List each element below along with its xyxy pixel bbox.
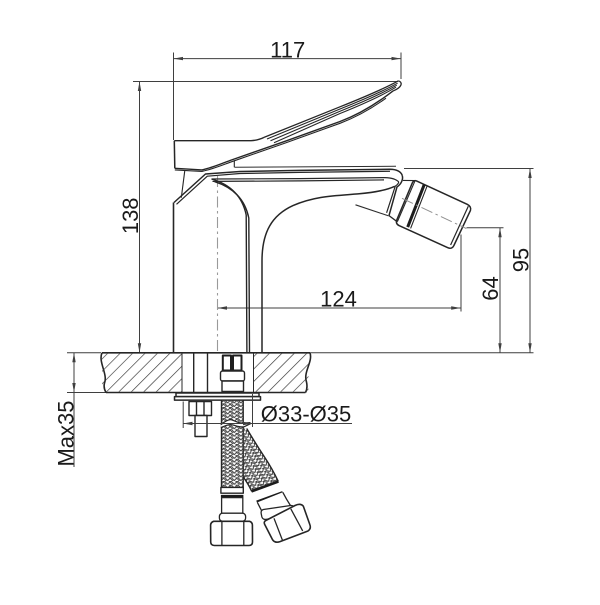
svg-text:95: 95 <box>509 248 534 272</box>
svg-text:Ø33-Ø35: Ø33-Ø35 <box>261 401 352 426</box>
svg-text:64: 64 <box>478 276 503 300</box>
svg-text:124: 124 <box>320 286 357 311</box>
svg-text:Max35: Max35 <box>54 400 79 466</box>
svg-text:138: 138 <box>118 197 143 234</box>
svg-text:117: 117 <box>270 38 305 63</box>
